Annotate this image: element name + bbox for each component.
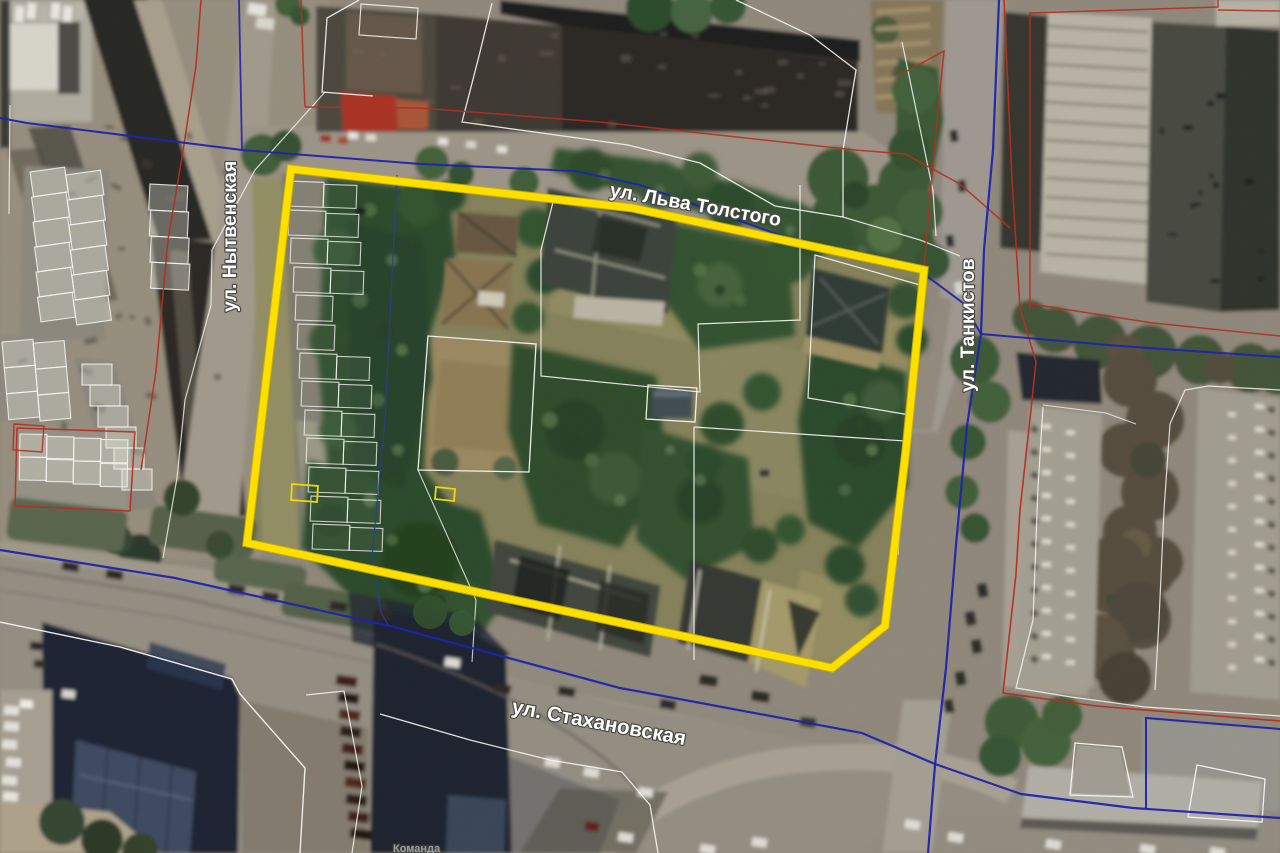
svg-text:ул. Нытвенская: ул. Нытвенская [219,161,241,312]
svg-text:Команда: Команда [393,843,441,853]
svg-text:ул. Танкистов: ул. Танкистов [957,258,979,392]
